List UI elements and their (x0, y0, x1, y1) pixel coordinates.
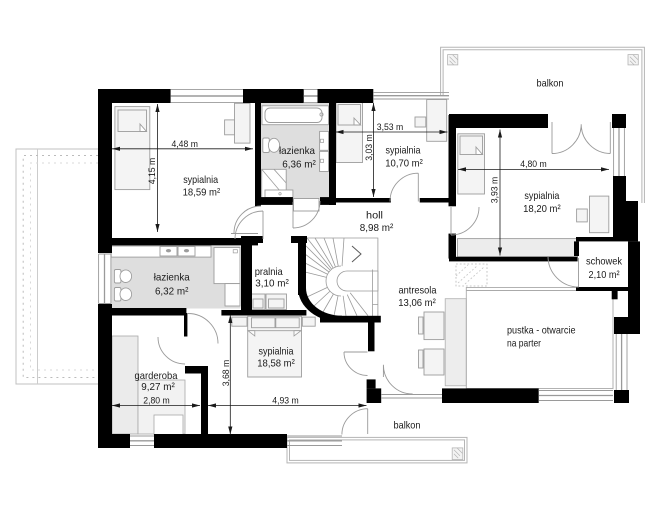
svg-text:balkon: balkon (537, 77, 564, 89)
svg-text:8,98 m²: 8,98 m² (360, 222, 394, 234)
svg-text:pustka - otwarcie: pustka - otwarcie (507, 325, 576, 337)
svg-text:4,15 m: 4,15 m (147, 158, 158, 185)
svg-text:2,10 m²: 2,10 m² (589, 269, 620, 281)
svg-text:sypialnia: sypialnia (259, 345, 294, 357)
svg-text:sypialnia: sypialnia (524, 190, 559, 202)
svg-text:sypialnia: sypialnia (386, 144, 421, 156)
svg-text:4,80 m: 4,80 m (520, 159, 547, 170)
svg-text:3,68 m: 3,68 m (221, 360, 232, 387)
svg-text:schowek: schowek (586, 256, 623, 268)
svg-text:garderoba: garderoba (135, 370, 178, 382)
svg-text:2,80 m: 2,80 m (143, 395, 170, 406)
svg-text:pralnia: pralnia (255, 266, 283, 278)
svg-text:13,06 m²: 13,06 m² (398, 297, 436, 309)
svg-text:18,58 m²: 18,58 m² (257, 357, 295, 369)
svg-text:10,70 m²: 10,70 m² (385, 157, 423, 169)
svg-text:holl: holl (366, 209, 383, 221)
svg-text:18,59 m²: 18,59 m² (183, 187, 221, 199)
svg-text:antresola: antresola (399, 284, 437, 296)
svg-text:na parter: na parter (507, 338, 541, 350)
svg-text:4,93 m: 4,93 m (272, 395, 299, 406)
svg-text:3,53 m: 3,53 m (377, 122, 404, 133)
svg-text:sypialnia: sypialnia (183, 174, 218, 186)
svg-text:4,48 m: 4,48 m (171, 139, 198, 150)
svg-text:6,36 m²: 6,36 m² (282, 158, 316, 170)
svg-text:łazienka: łazienka (279, 145, 315, 157)
svg-text:3,93 m: 3,93 m (490, 177, 501, 204)
svg-text:9,27 m²: 9,27 m² (141, 381, 175, 393)
svg-text:łazienka: łazienka (154, 272, 190, 284)
svg-text:6,32 m²: 6,32 m² (155, 285, 189, 297)
svg-text:3,03 m: 3,03 m (364, 134, 375, 161)
svg-text:3,10 m²: 3,10 m² (255, 277, 289, 289)
svg-text:18,20 m²: 18,20 m² (523, 203, 561, 215)
svg-text:balkon: balkon (394, 420, 421, 432)
